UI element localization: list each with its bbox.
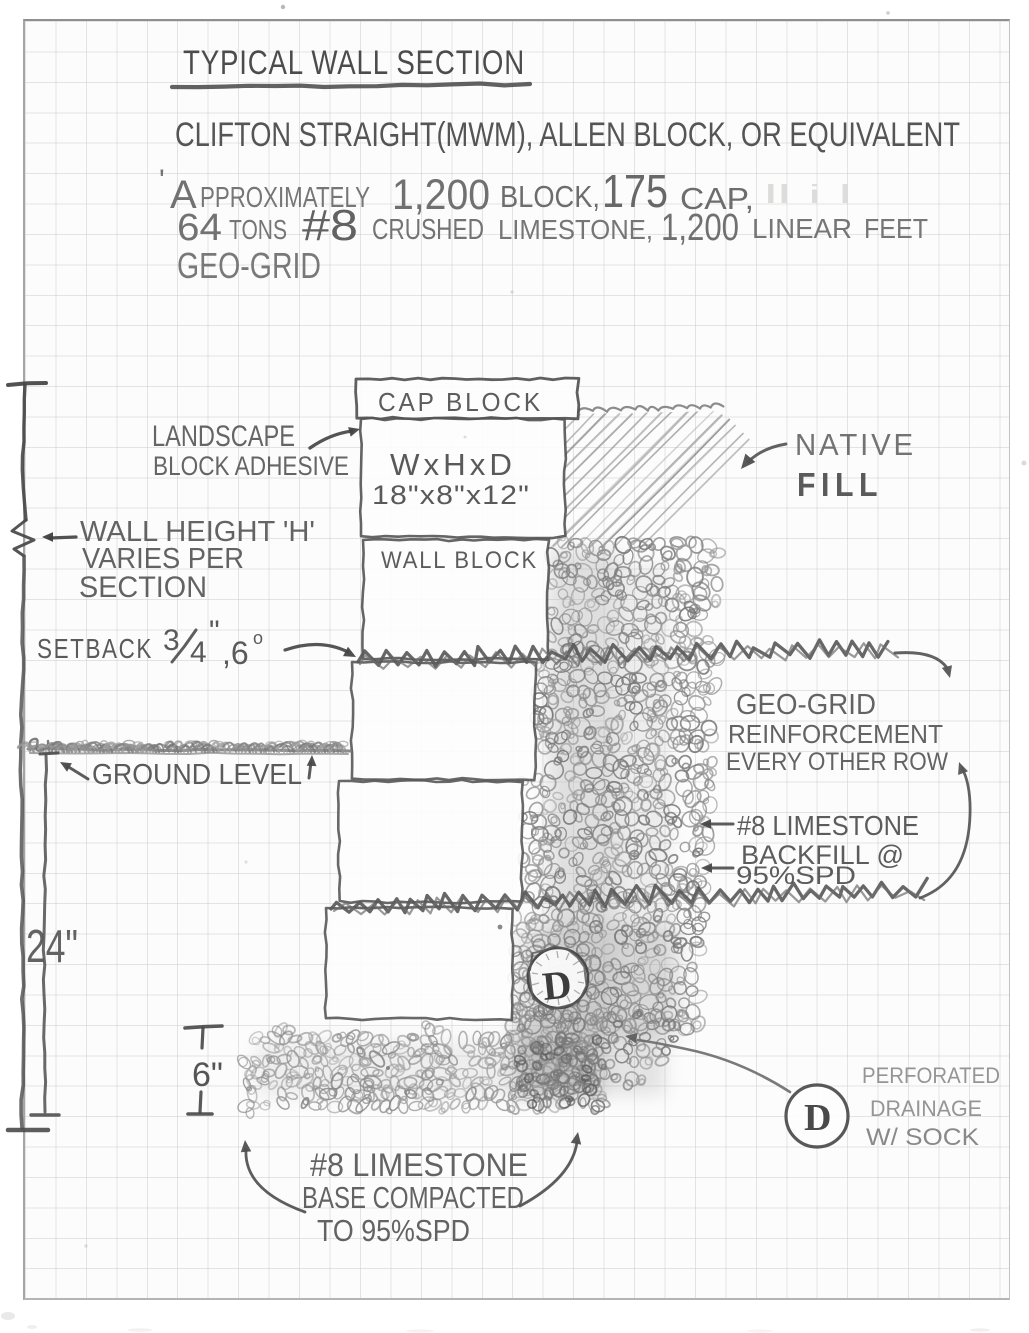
svg-text:BLOCK ADHESIVE: BLOCK ADHESIVE [153, 451, 349, 481]
svg-text:BASE COMPACTED: BASE COMPACTED [302, 1180, 524, 1215]
svg-text:PERFORATED: PERFORATED [862, 1063, 1000, 1088]
svg-text:1,200: 1,200 [661, 207, 739, 249]
svg-text:18"x8"x12": 18"x8"x12" [372, 480, 530, 510]
svg-text:#8 LIMESTONE: #8 LIMESTONE [310, 1147, 528, 1183]
svg-text:SECTION: SECTION [79, 571, 207, 604]
svg-text:175: 175 [602, 165, 668, 217]
svg-text:LANDSCAPE: LANDSCAPE [152, 420, 295, 453]
svg-text:4: 4 [190, 636, 207, 669]
svg-text:FEET: FEET [864, 213, 928, 244]
svg-text:D: D [540, 961, 573, 1009]
svg-text:EVERY OTHER ROW: EVERY OTHER ROW [726, 748, 948, 776]
svg-text:D: D [804, 1097, 831, 1139]
svg-text:o: o [253, 628, 263, 648]
svg-text:,6: ,6 [222, 635, 249, 671]
svg-text:TYPICAL WALL SECTION: TYPICAL WALL SECTION [183, 44, 525, 82]
svg-text:GROUND LEVEL: GROUND LEVEL [92, 759, 302, 791]
svg-text:1,200: 1,200 [392, 171, 490, 219]
svg-text:CAP BLOCK: CAP BLOCK [378, 387, 543, 417]
svg-text:LINEAR: LINEAR [752, 213, 852, 244]
svg-text:REINFORCEMENT: REINFORCEMENT [728, 719, 943, 749]
svg-text:#8: #8 [302, 201, 358, 250]
svg-text:WALL BLOCK: WALL BLOCK [381, 547, 538, 574]
svg-text:CLIFTON STRAIGHT(MWM), ALLEN B: CLIFTON STRAIGHT(MWM), ALLEN BLOCK, OR E… [175, 116, 960, 154]
svg-text:FILL: FILL [797, 466, 883, 503]
svg-text:W/ SOCK: W/ SOCK [866, 1124, 979, 1151]
svg-text:95%SPD: 95%SPD [736, 862, 856, 890]
svg-text:6": 6" [192, 1056, 223, 1094]
svg-text:3: 3 [163, 624, 180, 657]
svg-text:SETBACK: SETBACK [37, 633, 153, 664]
svg-text:LIMESTONE,: LIMESTONE, [498, 214, 653, 245]
svg-text:DRAINAGE: DRAINAGE [870, 1096, 982, 1121]
svg-text:64: 64 [177, 207, 222, 249]
svg-text:ll i l: ll i l [764, 179, 852, 209]
svg-text:TO 95%SPD: TO 95%SPD [317, 1213, 470, 1248]
svg-text:TONS: TONS [229, 214, 287, 245]
svg-text:NATIVE: NATIVE [795, 427, 916, 462]
svg-text:GEO-GRID: GEO-GRID [736, 689, 876, 721]
svg-text:GEO-GRID: GEO-GRID [177, 245, 321, 286]
svg-text:#8 LIMESTONE: #8 LIMESTONE [737, 810, 919, 841]
svg-text:24": 24" [26, 920, 78, 972]
svg-text:": " [209, 615, 220, 648]
svg-text:CRUSHED: CRUSHED [372, 214, 484, 246]
svg-text:WxHxD: WxHxD [390, 447, 516, 482]
svg-text:': ' [159, 164, 165, 197]
svg-text:BLOCK,: BLOCK, [500, 179, 600, 214]
